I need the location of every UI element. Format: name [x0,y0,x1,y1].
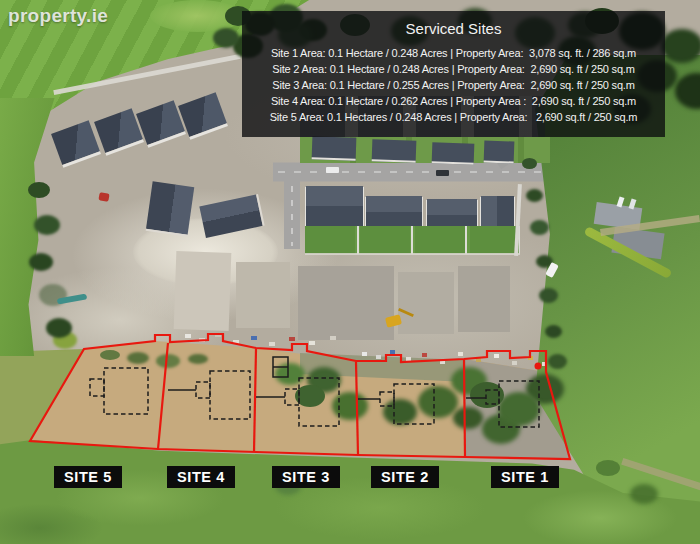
footprint-site2 [394,384,434,424]
west-grass-wedge [0,349,84,446]
plot-divider-2-1 [464,360,465,457]
site-label-5: SITE 5 [54,466,122,488]
site-label-2: SITE 2 [371,466,439,488]
footprint-site5-notch [90,379,104,396]
plot-divider-3-2 [356,362,358,455]
foundation-slab [236,262,290,328]
footprint-site4-notch [196,382,210,398]
site4-area-line: Site 4 Area: 0.1 Hectare / 0.262 Acres |… [242,93,665,109]
shrubs-on-plots [295,385,325,407]
site5-area-line: Site 5 Area: 0.1 Hectares / 0.248 Acres … [242,109,665,125]
footprint-site1 [499,381,539,427]
site1-area-line: Site 1 Area: 0.1 Hectare / 0.248 Acres |… [242,45,665,61]
garden-kerb [305,253,520,255]
foundation-slab [398,272,454,334]
house-roof [366,196,422,230]
serviced-sites-panel: Serviced Sites Site 1 Area: 0.1 Hectare … [242,11,665,137]
parked-car [436,170,449,176]
gardens-main-row [305,226,520,254]
house-roof [372,139,417,163]
plots-top-scrub-strip [300,353,466,382]
plot-divider-4-3 [254,349,256,452]
building-materials [185,334,191,338]
tree-cluster [596,460,620,476]
tree-cluster [28,182,50,198]
site-label-4: SITE 4 [167,466,235,488]
scrub-strip [100,350,120,360]
house-roof [306,186,363,228]
pipes [57,293,88,304]
footprint-connectors [168,357,486,399]
foundation-slab [298,266,394,340]
foundation-slab [458,266,510,332]
site-label-1: SITE 1 [491,466,559,488]
site2-area-line: Site 2 Area: 0.1 Hectare / 0.248 Acres |… [242,61,665,77]
watermark: property.ie [8,5,108,27]
plot-divider-5-4 [158,343,168,449]
house-roof [312,136,357,161]
parked-car [326,167,339,173]
footprint-site5 [104,368,148,414]
footprint-site2-notch [380,392,394,406]
boundary-wall-east [514,184,522,256]
gabled-house [51,120,101,168]
site-label-3: SITE 3 [272,466,340,488]
bushes-site1 [470,382,504,408]
hedgerow [522,158,537,169]
house-roof [484,140,515,163]
house-roof [432,142,475,164]
footprint-site4 [210,371,250,419]
terrace-block [146,181,195,236]
panel-title: Serviced Sites [242,20,665,38]
aerial-site-photo: property.ie Serviced Sites Site 1 Area: … [0,0,700,544]
building-materials [362,352,367,356]
bin-store-site3 [273,357,288,377]
foundation-slab [174,251,232,331]
site3-area-line: Site 3 Area: 0.1 Hectare / 0.255 Acres |… [242,77,665,93]
machinery [98,192,109,202]
